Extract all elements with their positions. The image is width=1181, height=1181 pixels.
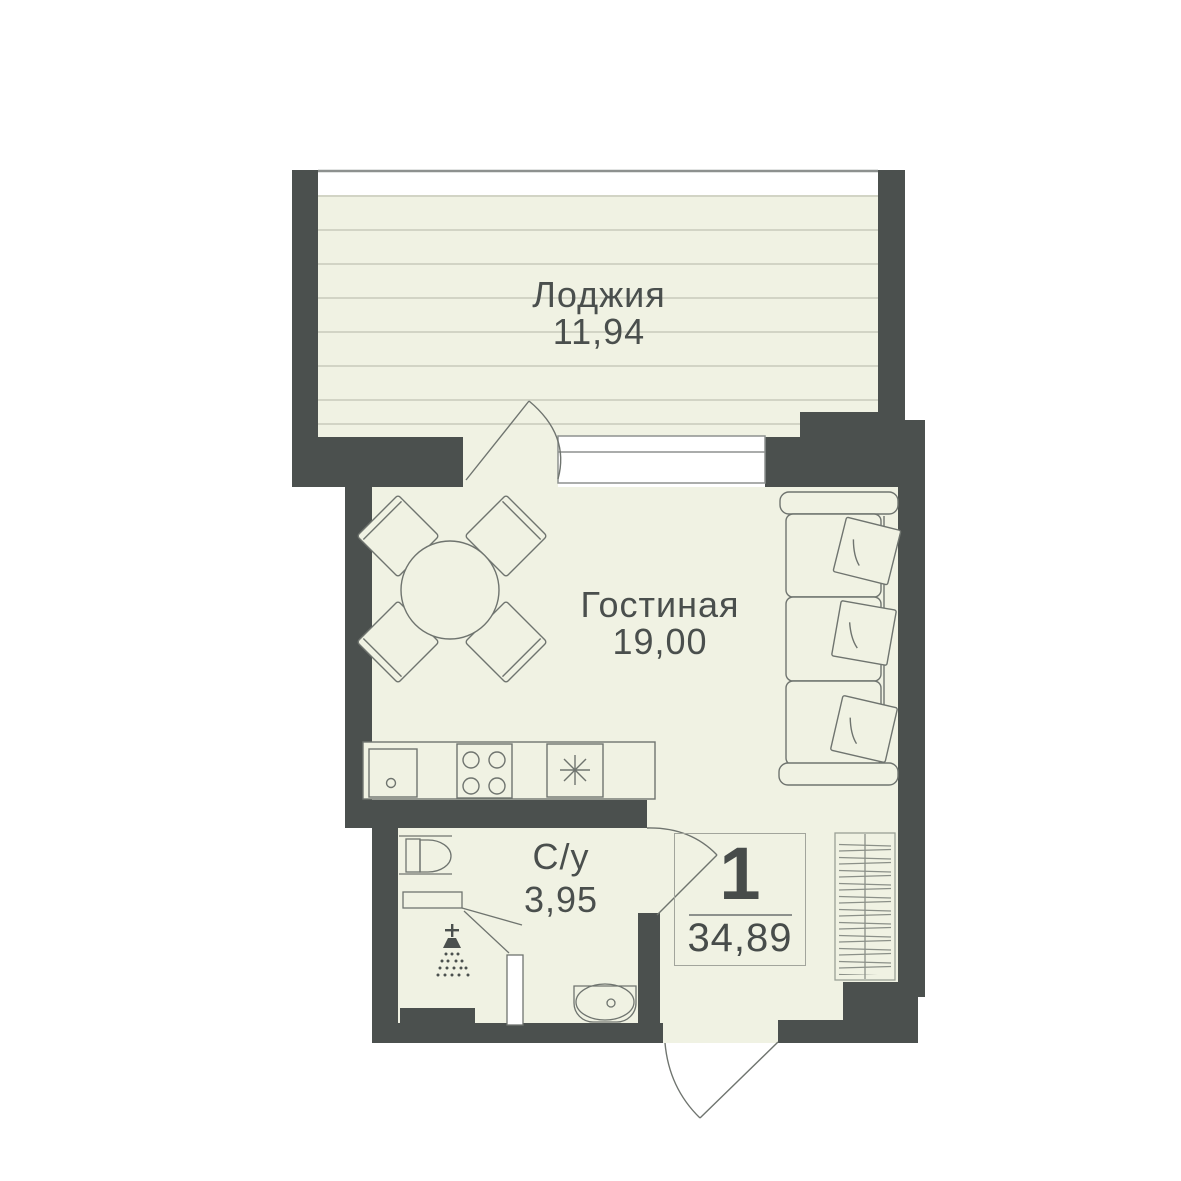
entrance-door-arc	[665, 1043, 700, 1118]
wall-segment	[372, 1023, 663, 1043]
balcony-threshold	[463, 437, 558, 487]
living-room-label: Гостиная 19,00	[580, 586, 739, 660]
wall-segment	[800, 412, 878, 439]
snowflake-icon	[560, 755, 590, 785]
kitchen	[363, 742, 655, 799]
floor-plan: Лоджия 11,94 Гостиная 19,00 С/у 3,95 1 3…	[0, 0, 1181, 1181]
sofa	[779, 492, 901, 785]
wall-segment	[778, 1020, 858, 1043]
room-area: 3,95	[524, 878, 598, 921]
sofa-armrest	[780, 492, 898, 514]
wall-segment	[292, 437, 463, 487]
kitchen-counter	[363, 742, 655, 799]
entrance-door-leaf	[700, 1042, 778, 1118]
total-area: 34,89	[687, 918, 792, 958]
wall-segment	[372, 800, 398, 1043]
wall-segment	[878, 170, 905, 435]
room-area: 11,94	[532, 313, 666, 350]
apartment-summary-box: 1 34,89	[674, 833, 806, 966]
window	[558, 436, 765, 483]
wall-segment	[400, 1008, 475, 1025]
sofa-pillow	[830, 695, 897, 762]
room-name: С/у	[524, 835, 598, 878]
dining-table	[401, 541, 499, 639]
sofa-pillow	[832, 601, 897, 666]
bathroom-label: С/у 3,95	[524, 835, 598, 921]
wardrobe	[835, 833, 895, 980]
wall-segment	[898, 435, 925, 997]
room-count: 1	[719, 836, 760, 913]
room-area: 19,00	[580, 623, 739, 660]
sofa-armrest	[779, 763, 898, 785]
room-name: Гостиная	[580, 586, 739, 623]
loggia-label: Лоджия 11,94	[532, 276, 666, 350]
entrance-door	[665, 1042, 778, 1118]
room-name: Лоджия	[532, 276, 666, 313]
